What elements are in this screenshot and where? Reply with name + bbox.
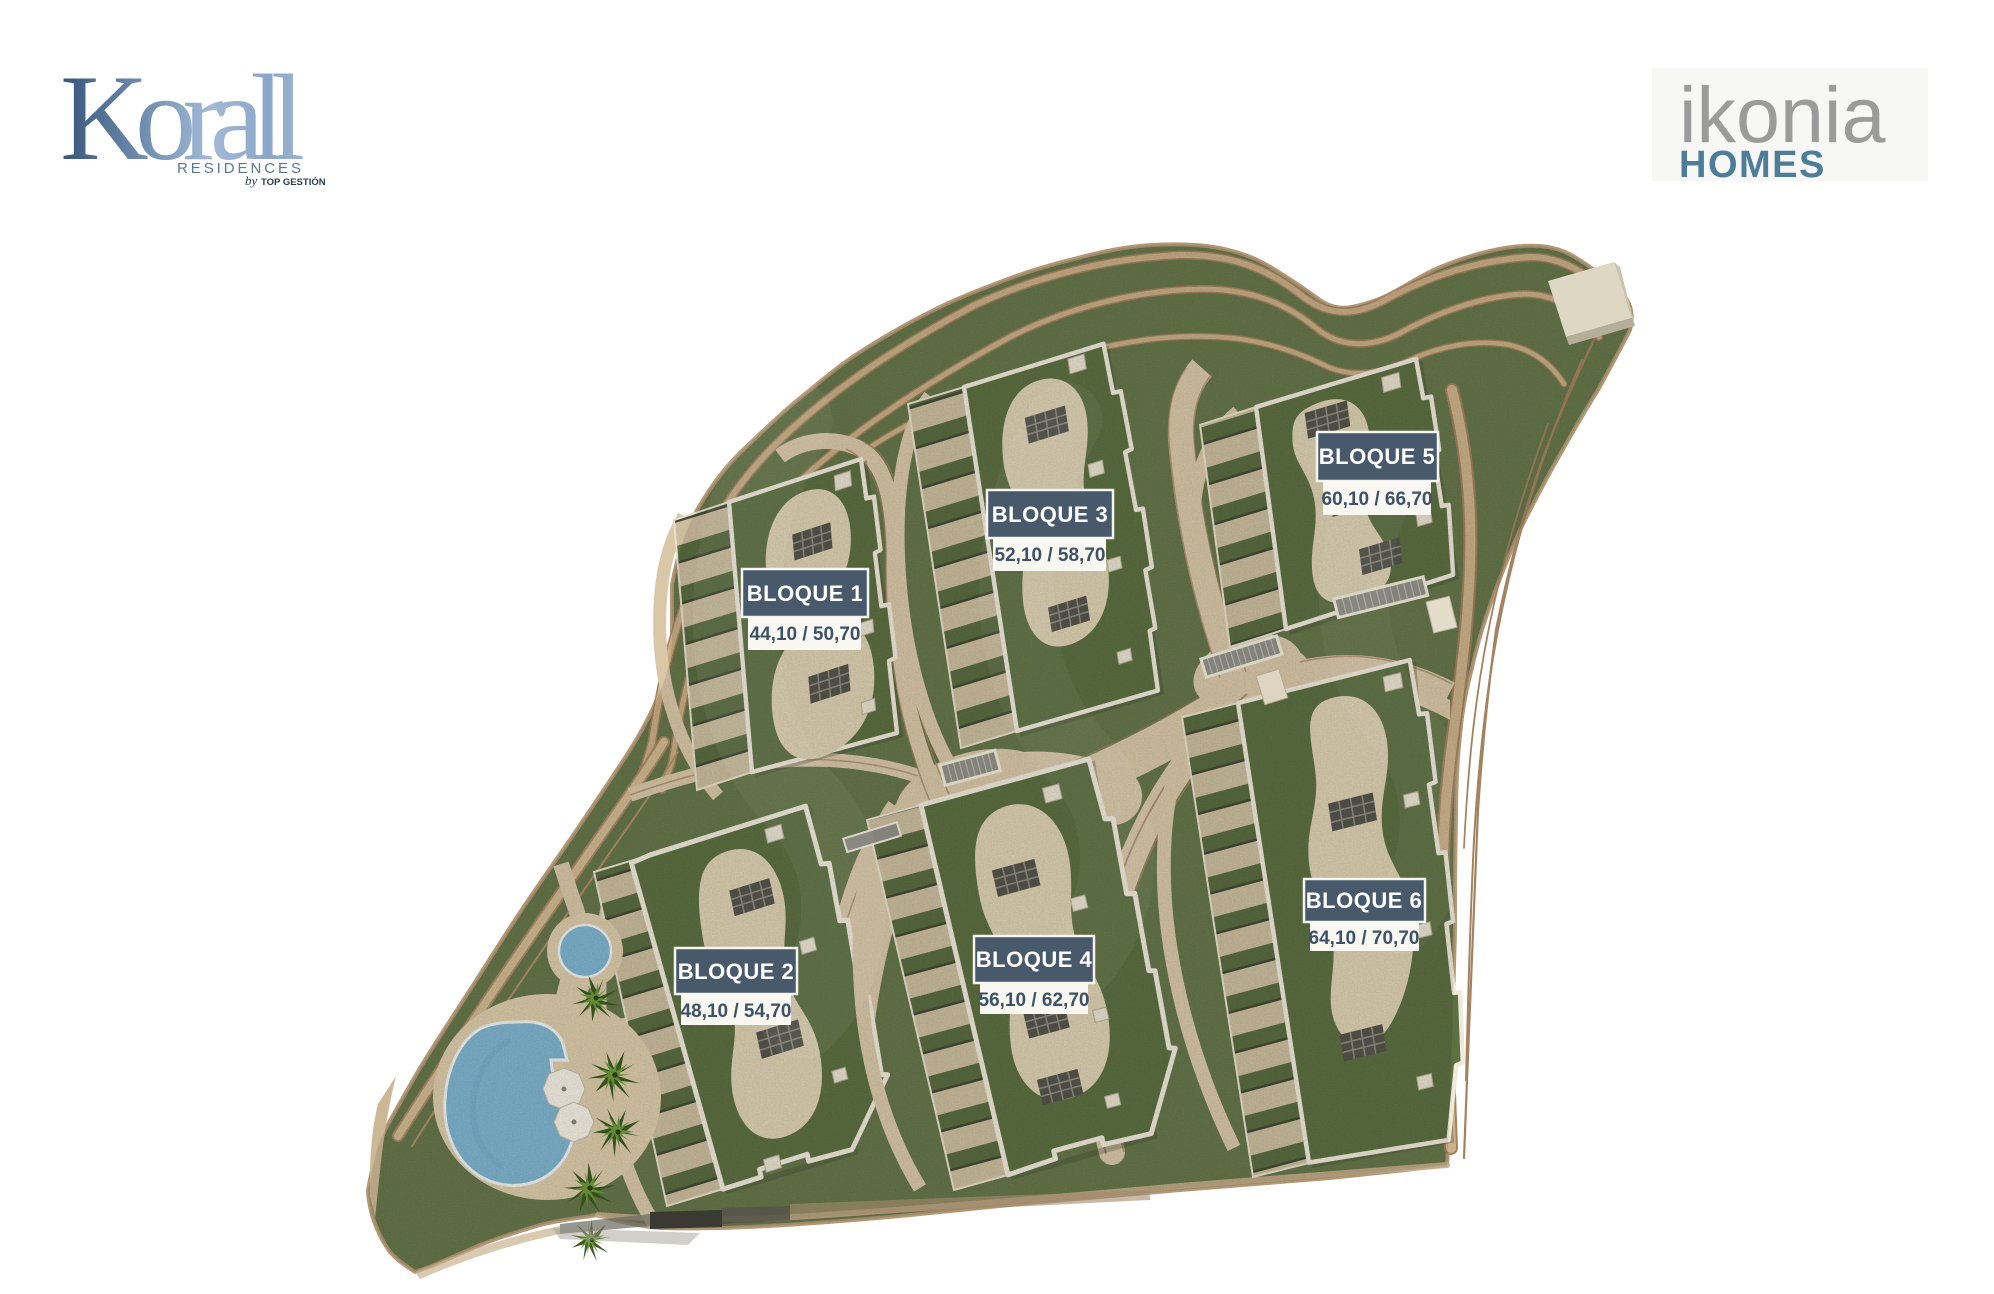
svg-text:BLOQUE 4: BLOQUE 4 bbox=[976, 947, 1093, 972]
svg-text:60,10 / 66,70: 60,10 / 66,70 bbox=[1322, 489, 1433, 510]
svg-text:BLOQUE 1: BLOQUE 1 bbox=[747, 581, 863, 606]
svg-text:BLOQUE 2: BLOQUE 2 bbox=[678, 959, 794, 984]
svg-text:52,10 / 58,70: 52,10 / 58,70 bbox=[995, 545, 1106, 566]
svg-text:64,10 / 70,70: 64,10 / 70,70 bbox=[1309, 928, 1420, 949]
svg-text:RESIDENCES: RESIDENCES bbox=[177, 160, 306, 177]
svg-text:HOMES: HOMES bbox=[1679, 144, 1826, 186]
svg-text:by: by bbox=[245, 173, 258, 188]
svg-text:BLOQUE 6: BLOQUE 6 bbox=[1306, 888, 1422, 913]
svg-text:BLOQUE 5: BLOQUE 5 bbox=[1319, 444, 1435, 469]
svg-text:44,10 / 50,70: 44,10 / 50,70 bbox=[750, 624, 861, 645]
svg-text:56,10 / 62,70: 56,10 / 62,70 bbox=[979, 990, 1090, 1011]
svg-text:BLOQUE 3: BLOQUE 3 bbox=[992, 502, 1108, 527]
svg-text:TOP GESTIÓN: TOP GESTIÓN bbox=[261, 176, 326, 188]
svg-text:48,10 / 54,70: 48,10 / 54,70 bbox=[681, 1001, 792, 1022]
